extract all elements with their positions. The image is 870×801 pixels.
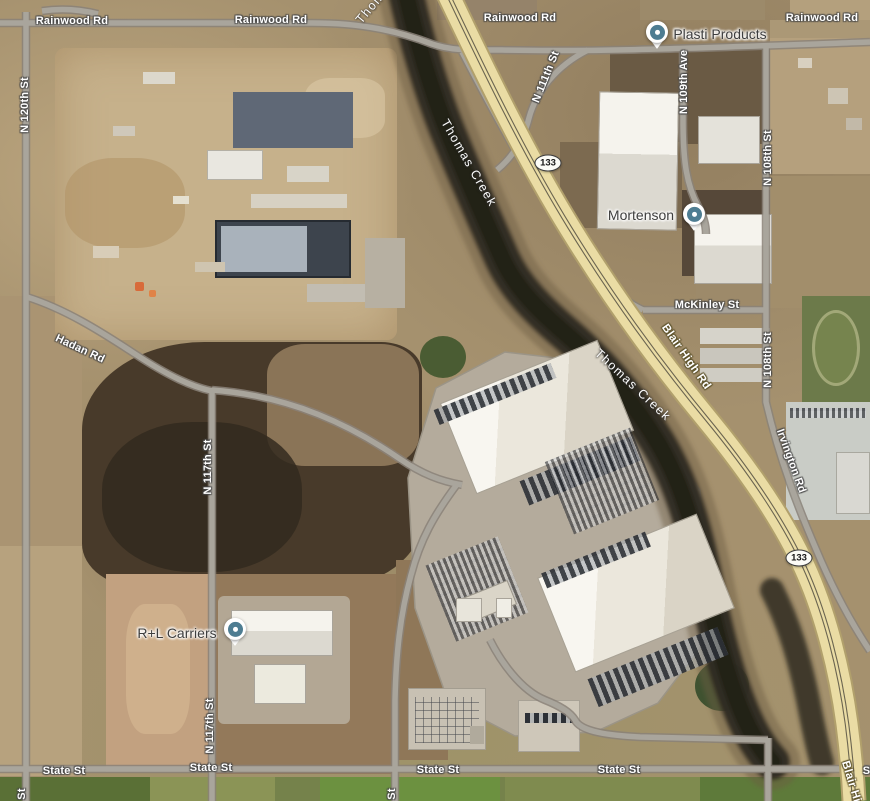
n-120th-st-partial-label: St xyxy=(16,788,28,799)
mckinley-st-label: McKinley St xyxy=(675,299,740,311)
st-partial-bottom-label: St xyxy=(386,788,398,799)
rainwood-rd-4-label: Rainwood Rd xyxy=(786,12,858,24)
n-109th-ave-label: N 109th Ave xyxy=(678,50,690,114)
rainwood-rd-3-label: Rainwood Rd xyxy=(484,12,556,24)
state-st-1-label: State St xyxy=(43,765,86,777)
state-st-4-label: State St xyxy=(598,764,641,776)
route-133-south-highway-shield: 133 xyxy=(786,550,813,567)
pin-dot-icon xyxy=(655,29,660,34)
r-l-carriers-marker[interactable] xyxy=(224,618,246,648)
plasti-products-marker[interactable] xyxy=(646,21,668,51)
n-117th-st-2-label: N 117th St xyxy=(204,698,216,753)
pin-dot-icon xyxy=(233,626,238,631)
state-st-2-label: State St xyxy=(190,762,233,774)
rainwood-rd-2-label: Rainwood Rd xyxy=(235,14,307,26)
satellite-map-canvas[interactable]: Rainwood RdRainwood RdRainwood RdRainwoo… xyxy=(0,0,870,801)
thomas-creek-2-label: Thomas Creek xyxy=(592,346,674,424)
n-108th-st-1-label: N 108th St xyxy=(762,130,774,186)
state-st-5-label: State St xyxy=(863,765,870,777)
n-108th-st-2-label: N 108th St xyxy=(762,332,774,388)
route-133-north-highway-shield: 133 xyxy=(535,155,562,172)
plasti-products-poi-label[interactable]: Plasti Products xyxy=(673,26,766,42)
map-labels-layer: Rainwood RdRainwood RdRainwood RdRainwoo… xyxy=(0,0,870,801)
pin-dot-icon xyxy=(692,211,697,216)
thomas-creek-top-label: Thomas Creek xyxy=(353,0,427,26)
n-120th-st-label: N 120th St xyxy=(19,77,31,133)
irvington-rd-label: Irvington Rd xyxy=(774,427,808,494)
state-st-3-label: State St xyxy=(417,764,460,776)
mortenson-poi-label[interactable]: Mortenson xyxy=(608,207,674,223)
rainwood-rd-1-label: Rainwood Rd xyxy=(36,15,108,27)
blair-high-rd-2-label: Blair High Rd xyxy=(839,760,870,801)
hadan-rd-label: Hadan Rd xyxy=(53,332,106,365)
blair-high-rd-1-label: Blair High Rd xyxy=(659,322,713,392)
n-111th-st-label: N 111th St xyxy=(530,49,562,104)
thomas-creek-1-label: Thomas Creek xyxy=(438,117,500,210)
mortenson-marker[interactable] xyxy=(683,203,705,233)
r-l-carriers-poi-label[interactable]: R+L Carriers xyxy=(137,625,216,641)
n-117th-st-1-label: N 117th St xyxy=(202,439,214,494)
